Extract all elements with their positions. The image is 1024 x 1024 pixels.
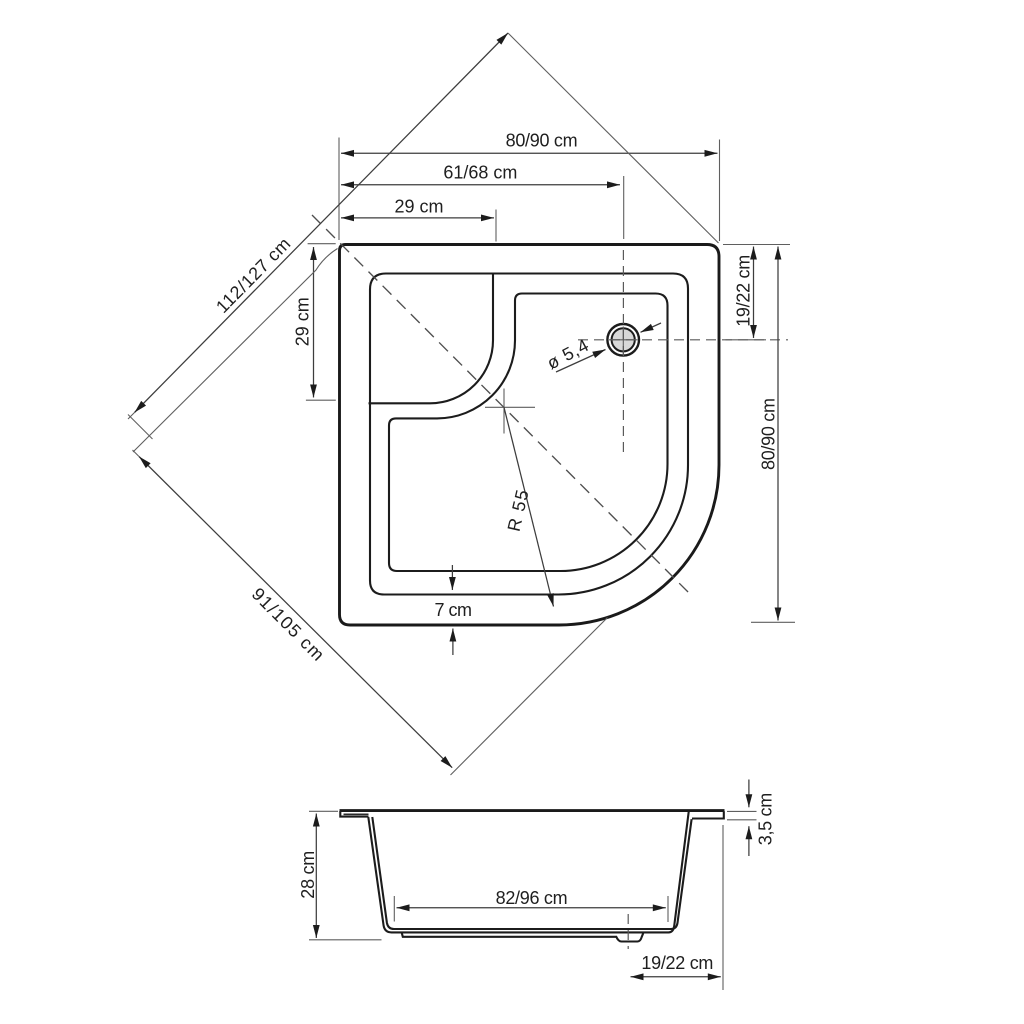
svg-text:28 cm: 28 cm bbox=[298, 851, 318, 899]
svg-text:R 55: R 55 bbox=[504, 488, 533, 533]
svg-text:91/105 cm: 91/105 cm bbox=[248, 584, 328, 665]
svg-text:80/90 cm: 80/90 cm bbox=[759, 398, 779, 470]
svg-text:3,5 cm: 3,5 cm bbox=[756, 793, 776, 846]
svg-text:82/96 cm: 82/96 cm bbox=[496, 888, 568, 908]
svg-text:29 cm: 29 cm bbox=[293, 297, 313, 346]
svg-text:7 cm: 7 cm bbox=[435, 600, 473, 620]
svg-text:61/68 cm: 61/68 cm bbox=[443, 163, 517, 183]
svg-text:ø 5,4: ø 5,4 bbox=[544, 335, 592, 373]
svg-text:80/90 cm: 80/90 cm bbox=[506, 131, 578, 151]
svg-text:19/22 cm: 19/22 cm bbox=[733, 255, 753, 327]
svg-text:29 cm: 29 cm bbox=[395, 197, 444, 217]
svg-text:19/22 cm: 19/22 cm bbox=[641, 953, 713, 973]
